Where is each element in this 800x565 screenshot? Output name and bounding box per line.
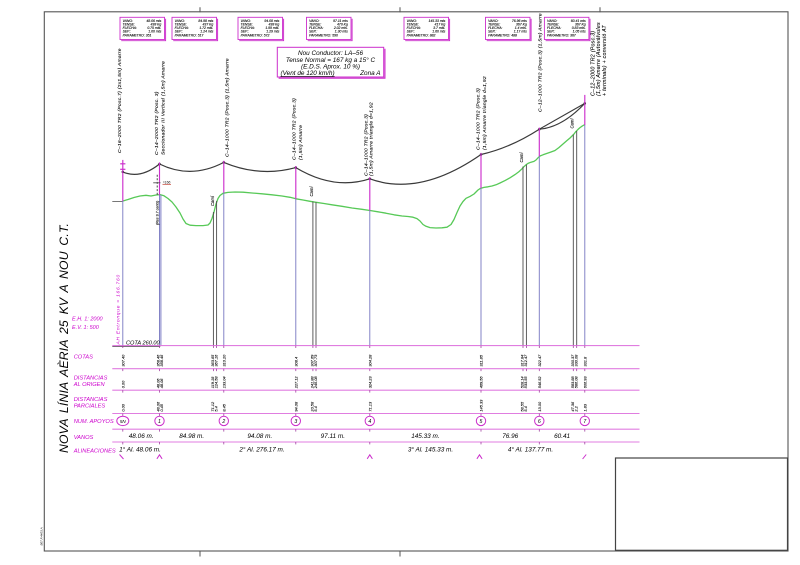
svg-text:0.00: 0.00: [120, 380, 125, 388]
svg-text:3: 3: [294, 419, 297, 425]
svg-text:312.47: 312.47: [523, 354, 528, 367]
svg-text:COTAS: COTAS: [74, 355, 93, 361]
svg-text:0.00: 0.00: [120, 403, 125, 411]
svg-text:330.08: 330.08: [574, 354, 579, 367]
svg-text:Camí: Camí: [309, 186, 314, 197]
svg-text:0.45: 0.45: [159, 403, 164, 411]
svg-text:97.11 m.: 97.11 m.: [321, 433, 345, 440]
svg-text:367.16: 367.16: [213, 354, 218, 367]
svg-text:PARAMETRO: 367: PARAMETRO: 367: [547, 33, 576, 37]
svg-text:606.93: 606.93: [582, 376, 587, 389]
svg-text:5.4: 5.4: [523, 405, 528, 411]
svg-text:DISTANCIAS: DISTANCIAS: [74, 397, 108, 403]
svg-text:Nou Conductor: LA–56: Nou Conductor: LA–56: [298, 50, 363, 57]
svg-text:PARAMETRO: 351: PARAMETRO: 351: [123, 33, 152, 37]
svg-text:308.4: 308.4: [293, 356, 298, 367]
svg-text:Camí: Camí: [519, 152, 524, 163]
svg-text:PARAMETRO: 488: PARAMETRO: 488: [488, 33, 517, 37]
svg-text:304.28: 304.28: [367, 354, 372, 367]
svg-text:145.33: 145.33: [479, 399, 484, 412]
svg-text:PARAMETRO: 572: PARAMETRO: 572: [241, 33, 270, 37]
svg-text:AL ORIGEN: AL ORIGEN: [73, 382, 106, 388]
svg-text:(1,5m) Amarre triangle d=1,92: (1,5m) Amarre triangle d=1,92: [482, 76, 488, 150]
svg-text:(1,5m) Amarre triangle d=1,92: (1,5m) Amarre triangle d=1,92: [368, 102, 374, 176]
svg-text:469.56: 469.56: [479, 376, 484, 389]
svg-text:76.96: 76.96: [502, 433, 518, 440]
svg-text:533.55: 533.55: [523, 376, 528, 389]
svg-text:(Res 9.7 cents): (Res 9.7 cents): [155, 201, 159, 225]
svg-text:6: 6: [538, 419, 541, 425]
svg-text:Camí: Camí: [569, 118, 574, 129]
svg-text:E.V. 1: 500: E.V. 1: 500: [72, 325, 100, 331]
svg-text:546.52: 546.52: [537, 376, 542, 389]
svg-text:C–16–2000 TR2 (Posc.7) (2x1,5m: C–16–2000 TR2 (Posc.7) (2x1,5m) Amarre: [117, 48, 123, 153]
svg-text:60.41: 60.41: [554, 433, 570, 440]
svg-text:71.13: 71.13: [367, 401, 372, 412]
svg-text:48.06 m.: 48.06 m.: [129, 433, 154, 440]
svg-text:1: 1: [158, 419, 161, 425]
svg-text:NOVA LÍNIA AÈRIA 25 KV A NOU C: NOVA LÍNIA AÈRIA 25 KV A NOU C.T.: [56, 223, 71, 453]
svg-text:B07.P.4403.A: B07.P.4403.A: [39, 527, 43, 545]
svg-text:Camí: Camí: [210, 195, 215, 206]
svg-text:5: 5: [480, 419, 483, 425]
svg-text:5.4: 5.4: [313, 405, 318, 411]
svg-text:AH Entronque = 166.760: AH Entronque = 166.760: [115, 274, 121, 345]
svg-text:5N: 5N: [120, 419, 127, 424]
svg-text:Seccionador III Vertical (1,5m: Seccionador III Vertical (1,5m) Amarre: [161, 61, 167, 155]
svg-text:C–14–1000 TR2 (Posc.3): C–14–1000 TR2 (Posc.3): [291, 98, 297, 160]
svg-text:94.08: 94.08: [293, 401, 298, 412]
svg-text:324.23: 324.23: [367, 376, 372, 389]
svg-text:358.46: 358.46: [159, 354, 164, 367]
svg-text:586.08: 586.08: [574, 376, 579, 389]
svg-text:PARAMETRO: 517: PARAMETRO: 517: [175, 33, 204, 37]
svg-text:PARAMETRO: 590: PARAMETRO: 590: [309, 33, 338, 37]
svg-text:C–14–2000 TR2 (Posc. 3): C–14–2000 TR2 (Posc. 3): [154, 91, 160, 155]
svg-text:1° Al. 48.06 m.: 1° Al. 48.06 m.: [119, 446, 161, 454]
svg-text:C–12–1000 TR2 (Posc.3) (1,5m): C–12–1000 TR2 (Posc.3) (1,5m) Amarre: [538, 13, 544, 112]
svg-text:307.73: 307.73: [313, 354, 318, 367]
svg-text:4° Al. 137.77 m.: 4° Al. 137.77 m.: [508, 446, 553, 454]
svg-text:94.08 m.: 94.08 m.: [247, 433, 272, 440]
svg-text:(1,5m) Amarre: (1,5m) Amarre: [298, 125, 304, 160]
svg-text:124.58: 124.58: [213, 376, 218, 389]
svg-text:307.40: 307.40: [120, 354, 125, 367]
svg-text:VANOS: VANOS: [74, 435, 94, 441]
svg-text:311.85: 311.85: [479, 354, 484, 366]
svg-text:Zona A: Zona A: [359, 70, 380, 77]
svg-text:ALINEACIONES: ALINEACIONES: [73, 449, 116, 455]
svg-text:4: 4: [368, 419, 371, 425]
svg-text:8.45: 8.45: [221, 403, 226, 411]
svg-text:322.47: 322.47: [537, 354, 542, 367]
svg-text:1.83: 1.83: [582, 403, 587, 411]
svg-text:133.04: 133.04: [221, 376, 226, 389]
svg-text:DISTANCIAS: DISTANCIAS: [74, 375, 108, 381]
svg-text:(Vent de 120 km/h): (Vent de 120 km/h): [281, 70, 335, 77]
svg-text:310.20: 310.20: [221, 354, 226, 367]
svg-text:2.2: 2.2: [574, 405, 579, 412]
svg-text:+ terminals) + conversió AT: + terminals) + conversió AT: [602, 25, 608, 96]
svg-text:C–14–1000 TR2 (Posc.3) (1,5m): C–14–1000 TR2 (Posc.3) (1,5m) Amarre: [224, 58, 230, 157]
svg-text:331.8: 331.8: [582, 356, 587, 367]
svg-text:145.33 m.: 145.33 m.: [411, 433, 439, 440]
svg-text:227.12: 227.12: [293, 376, 298, 390]
svg-text:PARCIALES: PARCIALES: [74, 403, 106, 409]
svg-text:2° Al. 276.17 m.: 2° Al. 276.17 m.: [238, 446, 284, 454]
svg-text:PARAMETRO: 882: PARAMETRO: 882: [407, 33, 436, 37]
svg-text:245.08: 245.08: [313, 376, 318, 390]
svg-text:C–14–1000 TR2 (Posc.3): C–14–1000 TR2 (Posc.3): [475, 88, 481, 150]
svg-text:5.4: 5.4: [213, 405, 218, 411]
svg-text:13.00: 13.00: [537, 401, 542, 412]
svg-text:NUM. APOYOS: NUM. APOYOS: [74, 419, 114, 425]
svg-text:E.H. 1: 2000: E.H. 1: 2000: [72, 317, 104, 323]
svg-text:2: 2: [221, 419, 225, 425]
svg-text:48.06: 48.06: [159, 378, 164, 389]
svg-text:3° Al. 145.33 m.: 3° Al. 145.33 m.: [408, 446, 453, 454]
svg-text:84.98 m.: 84.98 m.: [179, 433, 204, 440]
